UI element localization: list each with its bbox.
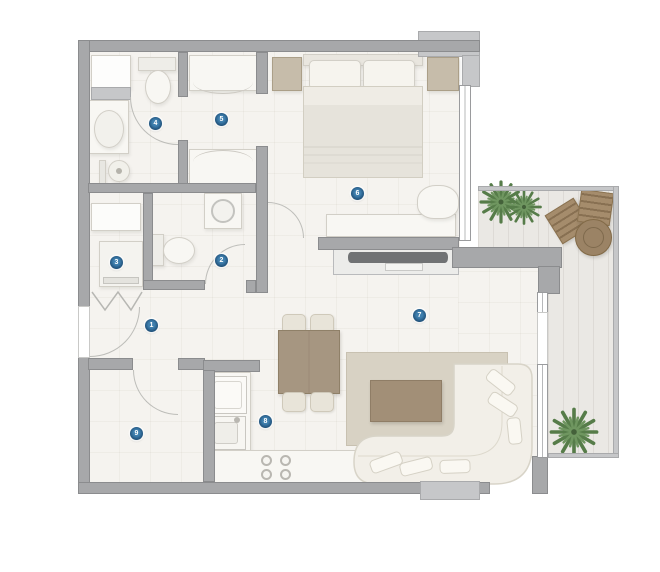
tv-soundbar — [385, 263, 423, 271]
room-marker-store-room[interactable]: 9 — [130, 427, 143, 440]
wall — [246, 280, 256, 293]
wall — [178, 358, 205, 370]
outdoor-table-ring — [583, 227, 604, 248]
room-marker-utility-closet[interactable]: 3 — [110, 256, 123, 269]
room-marker-bedroom[interactable]: 6 — [351, 187, 364, 200]
sofa-pillow — [507, 417, 523, 444]
wall — [178, 140, 188, 186]
wall-column — [462, 55, 480, 87]
dining-chair — [282, 392, 306, 412]
balcony-parapet — [548, 453, 619, 458]
wall — [452, 247, 562, 268]
entrance-door-opening[interactable] — [78, 306, 90, 358]
faucet — [234, 417, 240, 423]
nightstand-right — [427, 57, 459, 91]
room-marker-entry-hall[interactable]: 1 — [145, 319, 158, 332]
wall — [256, 146, 268, 293]
dining-table — [278, 330, 340, 394]
balcony-parapet — [478, 186, 618, 191]
room-marker-kitchen[interactable]: 8 — [259, 415, 272, 428]
wall — [78, 40, 480, 52]
washer-dryer-panel — [103, 277, 139, 284]
burner — [280, 455, 291, 466]
wall-column — [420, 481, 480, 500]
shower-drain-center — [116, 168, 122, 174]
wall — [318, 237, 459, 250]
room-marker-bathroom[interactable]: 4 — [149, 117, 162, 130]
balcony-parapet — [613, 186, 619, 458]
utility-bifold-door — [91, 290, 143, 312]
wall — [178, 52, 188, 97]
wall — [78, 40, 90, 494]
living-window — [537, 292, 548, 314]
wall — [143, 193, 153, 290]
dining-chair — [310, 392, 334, 412]
burner — [261, 469, 272, 480]
wall — [532, 456, 548, 494]
wall — [203, 370, 215, 482]
balcony-door-opening[interactable] — [537, 312, 548, 366]
tv — [348, 252, 448, 263]
room-marker-living-room[interactable]: 7 — [413, 309, 426, 322]
plant-icon — [504, 188, 544, 226]
corner-sofa — [350, 360, 540, 490]
living-window — [537, 364, 548, 458]
shower-niche — [91, 55, 131, 89]
washing-machine-drum — [211, 199, 235, 223]
wall — [88, 358, 133, 370]
bed-duvet — [303, 86, 423, 178]
utility-shelf — [91, 203, 141, 231]
wall — [88, 183, 256, 193]
bathroom-ledge — [91, 87, 131, 100]
burner — [280, 469, 291, 480]
wc-toilet-bowl — [163, 237, 195, 264]
floor-plan: 123456789 — [0, 0, 660, 572]
plant-icon — [546, 406, 602, 458]
room-marker-dressing-area[interactable]: 5 — [215, 113, 228, 126]
wall — [538, 266, 560, 294]
room-marker-wc[interactable]: 2 — [215, 254, 228, 267]
sofa-pillow — [440, 459, 470, 473]
fridge-inner — [214, 381, 242, 409]
kitchen-sink-basin — [214, 422, 238, 444]
washbasin — [94, 110, 124, 148]
desk-chair — [417, 185, 459, 219]
wall — [256, 52, 268, 94]
wall — [143, 280, 205, 290]
burner — [261, 455, 272, 466]
nightstand-left — [272, 57, 302, 91]
toilet-tank — [138, 57, 176, 71]
bedroom-window — [459, 85, 471, 241]
stove — [256, 452, 302, 483]
